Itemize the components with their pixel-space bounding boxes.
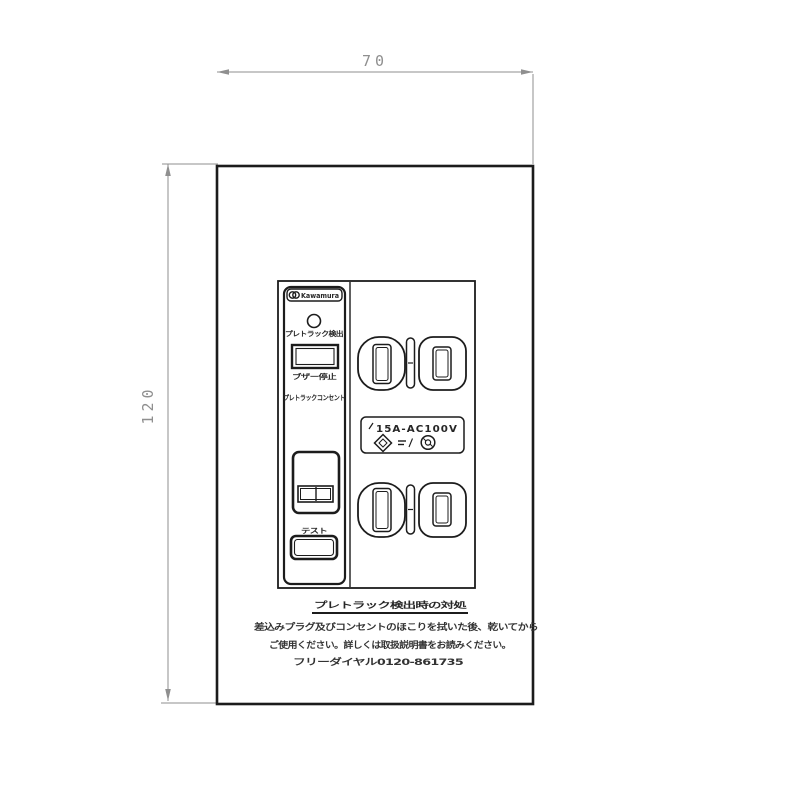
arrow-down-icon [165,689,171,701]
width-dimension: 70 [217,52,533,164]
height-dimension-label: 120 [139,385,157,424]
test-label: テスト [301,527,328,535]
arrow-left-icon [217,69,229,75]
technical-drawing: 70 120 Kawamura プレトラック検出 ブザー停止 プレトラックコン [0,0,800,800]
caption-heading: プレトラック検出時の対処 [314,600,468,611]
detection-led-label: プレトラック検出 [285,329,344,338]
drawing-canvas: 70 120 Kawamura プレトラック検出 ブザー停止 プレトラックコン [0,0,800,800]
width-dimension-label: 70 [362,52,388,70]
arrow-right-icon [521,69,533,75]
arrow-up-icon [165,164,171,176]
rating-text: 15A-AC100V [376,424,458,435]
brand-logo-text: Kawamura [301,292,339,300]
caption-line-3: フリーダイヤル0120-861735 [293,656,463,668]
strip-title-label: プレトラックコンセント [283,393,345,402]
caption-line-2: ご使用ください。詳しくは取扱説明書をお読みください。 [269,639,511,651]
buzzer-stop-label: ブザー停止 [292,372,337,381]
caption-line-1: 差込みプラグ及びコンセントのほこりを拭いた後、乾いてから [254,621,538,633]
